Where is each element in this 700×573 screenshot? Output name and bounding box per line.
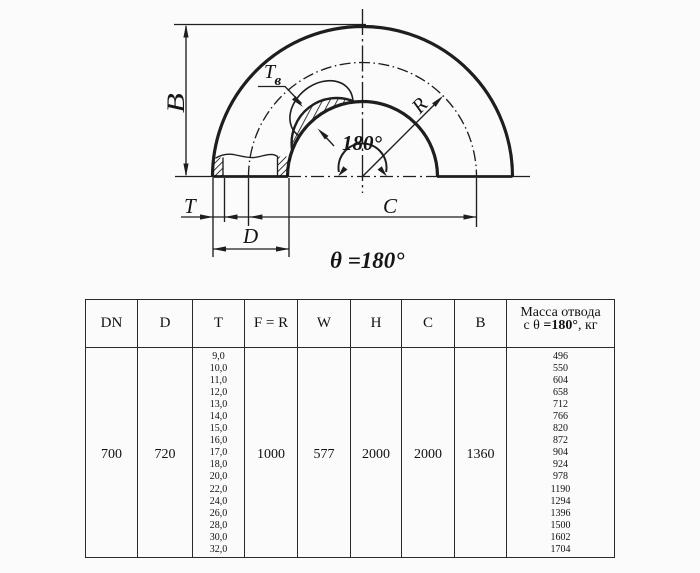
svg-text:в: в xyxy=(275,73,282,89)
svg-text:C: C xyxy=(383,194,398,218)
svg-text:B: B xyxy=(162,93,190,113)
svg-text:180°: 180° xyxy=(342,131,383,155)
svg-text:T: T xyxy=(184,194,197,218)
svg-text:D: D xyxy=(242,224,258,248)
svg-text:θ =180°: θ =180° xyxy=(330,248,405,273)
svg-text:R: R xyxy=(407,93,433,118)
